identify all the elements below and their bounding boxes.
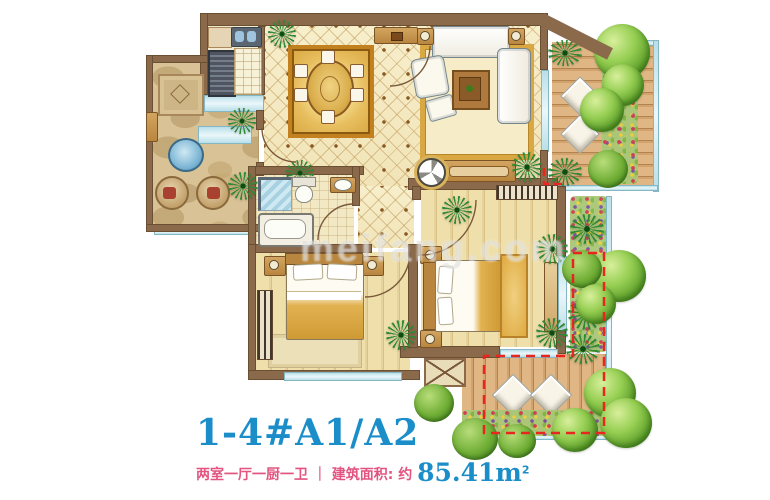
bed2-window-bottom <box>284 372 402 381</box>
wall-terrace-top <box>146 55 208 63</box>
palm-plant-icon <box>548 158 582 186</box>
living-balcony-door-glass <box>541 70 549 152</box>
coffee-table <box>452 70 490 110</box>
armchair <box>410 54 450 99</box>
bath-sink <box>334 179 352 191</box>
dining-chair <box>294 64 308 78</box>
kitchen-closet <box>208 27 232 48</box>
tv-cabinet-top <box>449 166 509 177</box>
table-lamp <box>269 260 279 270</box>
tree-icon <box>600 398 652 448</box>
chair-cushion <box>163 187 176 199</box>
ac-platform <box>424 358 466 387</box>
palm-plant-icon <box>566 334 600 364</box>
sofa-side-table <box>417 28 434 45</box>
kitchen-sink <box>231 27 262 47</box>
terrace-chair <box>196 176 230 210</box>
caption-area-value: 85.41 <box>417 458 495 487</box>
sink-basin <box>247 31 256 42</box>
caption-separator: ｜ <box>313 467 327 483</box>
console-decor <box>391 32 403 41</box>
sofa-side-table <box>508 28 525 45</box>
caption-area-label: 建筑面积: 约 <box>332 467 412 483</box>
sofa-chaise <box>497 48 531 124</box>
wall-master-left-stub-top <box>412 186 421 200</box>
table-lamp <box>420 31 430 41</box>
terrace-rug-diamond <box>170 84 190 104</box>
tv-cabinet <box>440 160 516 182</box>
palm-plant-icon <box>228 172 258 200</box>
table-plant-icon <box>466 85 473 92</box>
bed2-nightstand <box>264 256 286 276</box>
dining-chair <box>321 50 335 64</box>
sink-basin <box>235 31 244 42</box>
dining-chair <box>350 88 364 102</box>
kitchen-stove <box>208 50 236 97</box>
bush-icon <box>588 150 628 188</box>
floor-fan-icon <box>417 158 446 187</box>
wall-terrace-hall-upper <box>256 110 264 130</box>
bush-icon <box>414 384 454 422</box>
tree-icon <box>552 408 598 452</box>
wall-living-right <box>540 26 548 70</box>
dining-chair <box>321 110 335 124</box>
terrace-chair <box>155 176 189 210</box>
palm-plant-icon <box>228 108 256 134</box>
palm-plant-icon <box>512 152 542 182</box>
caption-area-unit-sup: 2 <box>522 463 530 476</box>
master-pillow <box>437 297 454 326</box>
shower <box>258 177 292 211</box>
dining-table-center <box>320 76 340 102</box>
tree-icon <box>576 284 616 324</box>
foyer-console-table <box>374 27 418 44</box>
bush-icon <box>452 418 498 460</box>
table-lamp <box>425 334 435 344</box>
master-garden-door <box>500 349 558 358</box>
caption-area-unit: m <box>495 458 521 487</box>
palm-plant-icon <box>536 318 568 348</box>
bed2-fold <box>287 291 361 300</box>
terrace-bench <box>146 112 158 142</box>
palm-plant-icon <box>386 320 416 350</box>
watermark: meifang.com <box>300 228 567 271</box>
palm-plant-icon <box>548 40 582 66</box>
plan-title: 1-4#A1/A2 <box>196 412 419 454</box>
wall-terrace-left <box>146 55 153 232</box>
master-wardrobe <box>496 185 558 200</box>
toilet-bowl <box>295 185 313 203</box>
wall-terrace-bottom <box>146 224 264 232</box>
kitchen-tile-counter <box>234 48 262 95</box>
palm-plant-icon <box>570 214 604 244</box>
bed2-wardrobe <box>257 290 273 360</box>
table-lamp <box>511 31 521 41</box>
plan-caption: 两室一厅一厨一卫 ｜ 建筑面积: 约 85.41m2 <box>196 458 530 487</box>
wall-bed2-left <box>248 244 256 380</box>
bush-icon <box>498 424 536 458</box>
terrace-table <box>168 138 204 172</box>
terrace-rug <box>158 74 204 116</box>
palm-plant-icon <box>268 20 296 48</box>
caption-layout: 两室一厅一厨一卫 <box>196 467 308 483</box>
palm-plant-icon <box>442 196 472 224</box>
wall-top <box>200 13 548 26</box>
floor-plan-page: meifang.com 1-4#A1/A2 两室一厅一厨一卫 ｜ 建筑面积: 约… <box>0 0 770 500</box>
dining-chair <box>350 64 364 78</box>
dining-chair <box>294 88 308 102</box>
balcony-glass-right <box>653 40 659 192</box>
bush-icon <box>562 250 602 288</box>
chair-cushion <box>207 187 220 199</box>
tree-icon <box>580 88 624 132</box>
master-nightstand <box>420 330 442 348</box>
